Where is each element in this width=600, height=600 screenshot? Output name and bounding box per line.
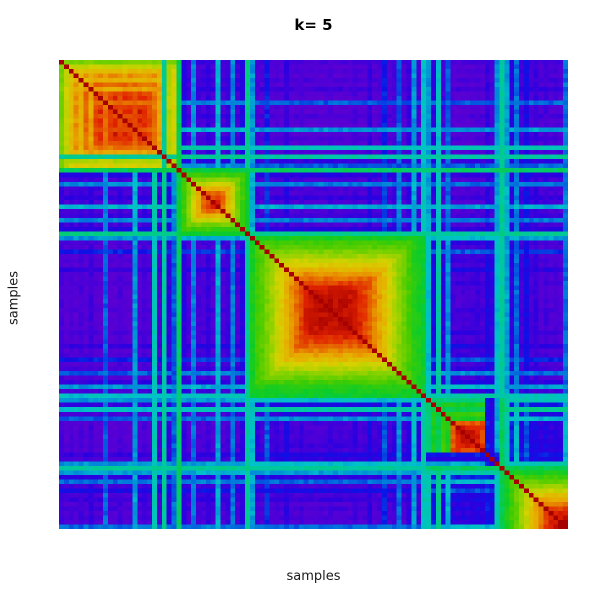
- consensus-heatmap: [59, 60, 568, 529]
- plot-title: k= 5: [59, 16, 568, 34]
- y-axis-label: samples: [7, 271, 22, 325]
- consensus-matrix-figure: k= 5 samples samples: [0, 0, 600, 600]
- x-axis-label: samples: [59, 569, 568, 584]
